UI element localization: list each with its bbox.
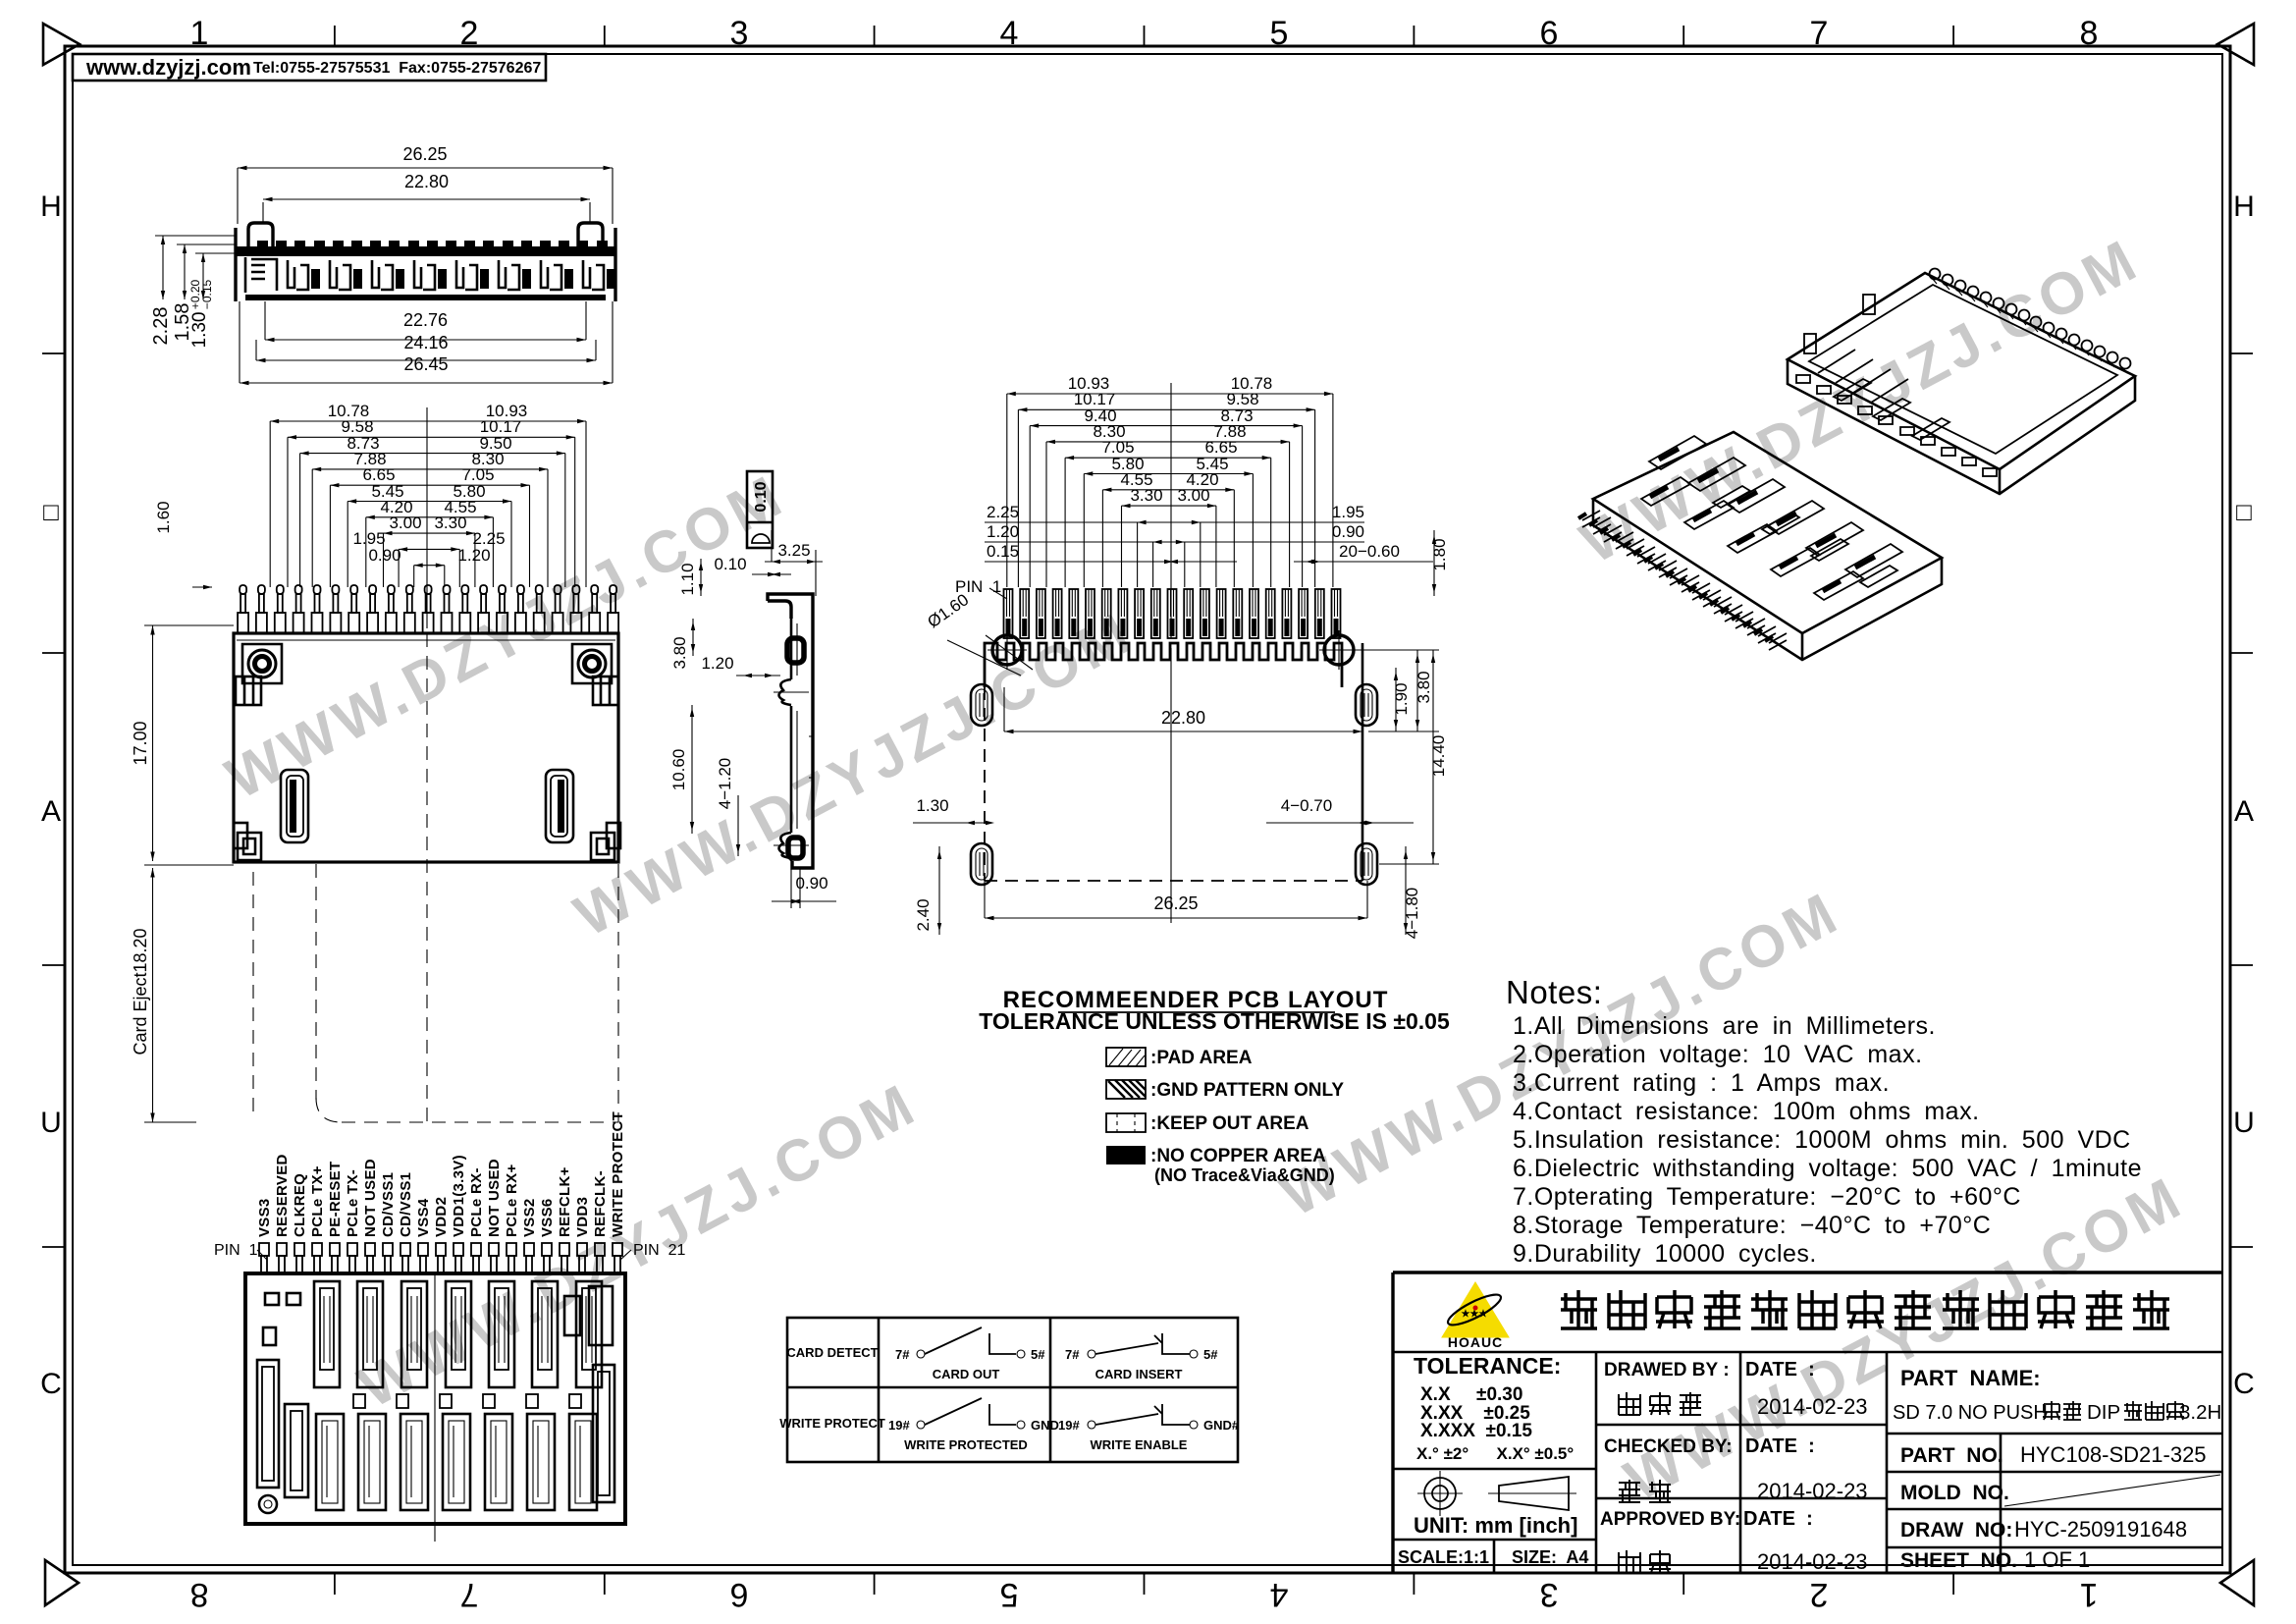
svg-text:8.Storage Temperature: −40°C t: 8.Storage Temperature: −40°C to +70°C [1513,1212,1991,1239]
svg-text:19#: 19# [888,1418,910,1433]
svg-text:VSS3: VSS3 [256,1198,273,1237]
svg-text:1.30: 1.30 [189,312,210,349]
svg-text:14.40: 14.40 [1429,735,1448,778]
svg-text:1.60: 1.60 [154,501,173,533]
svg-text:HYC108-SD21-325: HYC108-SD21-325 [2020,1442,2207,1467]
svg-text:1: 1 [190,15,209,52]
svg-text:C: C [2233,1368,2255,1400]
svg-text:WRITE PROTECTED: WRITE PROTECTED [904,1437,1028,1452]
svg-text:0.10: 0.10 [714,555,746,573]
svg-text:SIZE: A4: SIZE: A4 [1512,1547,1588,1567]
svg-text:CARD INSERT: CARD INSERT [1095,1367,1183,1381]
svg-text:A: A [41,795,61,828]
svg-text:6.Dielectric withstanding volt: 6.Dielectric withstanding voltage: 500 V… [1513,1155,2142,1182]
svg-text:2: 2 [460,15,479,52]
svg-text:PART NAME:: PART NAME: [1900,1366,2041,1390]
svg-text:1.20: 1.20 [457,546,490,565]
svg-text:DATE :: DATE : [1745,1435,1815,1457]
svg-text:3.30: 3.30 [1130,486,1162,505]
svg-text:8: 8 [2080,15,2099,52]
svg-text:UNIT: mm [inch]: UNIT: mm [inch] [1414,1513,1577,1538]
svg-text:Tel:0755-27575531 Fax:0755-27: Tel:0755-27575531 Fax:0755-27576267 [253,60,541,77]
svg-text:PART NO.: PART NO. [1900,1444,2003,1467]
svg-text:24.16: 24.16 [403,333,448,352]
svg-text:DIP: DIP [2087,1401,2120,1424]
svg-text:9.Durability 10000 cycles.: 9.Durability 10000 cycles. [1513,1240,1817,1268]
svg-text:22.80: 22.80 [1161,708,1205,728]
svg-text:U: U [2233,1107,2255,1139]
svg-text:3: 3 [1540,1576,1559,1613]
svg-text:Card Eject18.20: Card Eject18.20 [131,928,150,1055]
svg-text:□: □ [43,497,59,526]
svg-text:CD/VSS1: CD/VSS1 [398,1172,414,1237]
svg-text:4: 4 [1000,15,1019,52]
svg-text:2.Operation voltage: 10 VAC ma: 2.Operation voltage: 10 VAC max. [1513,1041,1923,1068]
svg-text:6: 6 [730,1576,749,1613]
svg-text:□: □ [2236,497,2252,526]
svg-text:NOT USED: NOT USED [486,1159,503,1237]
svg-text:SD 7.0 NO PUSH: SD 7.0 NO PUSH [1893,1402,2048,1424]
svg-text:C: C [40,1368,62,1400]
svg-text:TOLERANCE UNLESS OTHERWISE IS: TOLERANCE UNLESS OTHERWISE IS ±0.05 [979,1008,1450,1034]
svg-text:19#: 19# [1058,1418,1080,1433]
svg-text:WRITE PROTECT: WRITE PROTECT [779,1416,885,1431]
svg-text:2.28: 2.28 [150,307,172,346]
svg-text:X.XXX ±0.15: X.XXX ±0.15 [1420,1421,1532,1441]
svg-text:(NO Trace&Via&GND): (NO Trace&Via&GND) [1154,1165,1335,1185]
svg-text:HOAUC: HOAUC [1448,1334,1503,1350]
svg-text:RESERVED: RESERVED [274,1154,291,1237]
svg-text:26.45: 26.45 [403,354,448,374]
svg-text:22.80: 22.80 [404,172,449,191]
svg-text::GND PATTERN ONLY: :GND PATTERN ONLY [1150,1080,1344,1101]
svg-text:1.20: 1.20 [987,522,1019,541]
svg-text:APPROVED BY:: APPROVED BY: [1600,1509,1740,1530]
svg-text:3.25: 3.25 [777,541,810,560]
svg-text:3.2H: 3.2H [2179,1401,2221,1424]
svg-text:0.90: 0.90 [368,546,400,565]
svg-text:1.All Dimensions are in Millim: 1.All Dimensions are in Millimeters. [1513,1012,1936,1040]
svg-text:CD/VSS1: CD/VSS1 [380,1172,397,1237]
svg-text:U: U [40,1107,62,1139]
svg-text:MOLD NO.: MOLD NO. [1900,1482,2009,1504]
svg-text:22.76: 22.76 [403,310,448,330]
svg-text:5.Insulation resistance: 1000M: 5.Insulation resistance: 1000M ohms min.… [1513,1126,2131,1154]
svg-text:2.40: 2.40 [914,898,933,931]
svg-text:X.X ±0.30: X.X ±0.30 [1420,1384,1522,1405]
svg-text:H: H [2233,190,2255,223]
svg-text:7: 7 [1810,15,1829,52]
svg-text:DRAWED BY :: DRAWED BY : [1604,1360,1730,1380]
svg-text:VDD1(3.3V): VDD1(3.3V) [451,1155,467,1237]
svg-text:3.00: 3.00 [389,514,421,532]
svg-text:0.90: 0.90 [1332,522,1364,541]
svg-text:A: A [2234,795,2254,828]
svg-text:1: 1 [2080,1576,2099,1613]
svg-text:1.20: 1.20 [701,654,733,673]
svg-text:26.25: 26.25 [1153,893,1198,913]
svg-text:26.25: 26.25 [402,144,447,164]
svg-text:Notes:: Notes: [1506,974,1602,1010]
svg-text:2: 2 [1810,1576,1829,1613]
svg-text:TOLERANCE:: TOLERANCE: [1414,1353,1561,1379]
svg-text:VSS2: VSS2 [521,1198,538,1237]
svg-text:SHEET NO.: SHEET NO. [1900,1549,2017,1572]
svg-text:GND#: GND# [1203,1418,1240,1433]
svg-text:REFCLK-: REFCLK- [592,1170,609,1237]
svg-text:2014-02-23: 2014-02-23 [1757,1394,1868,1419]
svg-text:0.15: 0.15 [987,542,1019,561]
svg-text:PIN 1: PIN 1 [214,1242,258,1259]
svg-text:HYC-2509191648: HYC-2509191648 [2014,1517,2187,1542]
svg-text:H: H [40,190,62,223]
svg-text:8: 8 [190,1576,209,1613]
svg-text:3.80: 3.80 [670,636,689,669]
svg-text:DATE :: DATE : [1745,1359,1815,1380]
svg-text:2014-02-23: 2014-02-23 [1757,1549,1868,1574]
svg-text::NO COPPER AREA: :NO COPPER AREA [1150,1146,1326,1166]
svg-text:SCALE:1:1: SCALE:1:1 [1398,1547,1489,1567]
svg-text:CHECKED BY:: CHECKED BY: [1604,1436,1733,1457]
svg-text::PAD AREA: :PAD AREA [1150,1048,1253,1068]
svg-text:WRITE PROTECT: WRITE PROTECT [610,1111,626,1237]
svg-text:5: 5 [1270,15,1289,52]
svg-text:7: 7 [460,1576,479,1613]
svg-text:3: 3 [730,15,749,52]
svg-text:2014-02-23: 2014-02-23 [1757,1479,1868,1503]
svg-text:VSS4: VSS4 [415,1198,432,1237]
svg-text:DATE :: DATE : [1743,1508,1813,1530]
svg-text:NOT USED: NOT USED [362,1159,379,1237]
svg-text:10.60: 10.60 [669,749,688,791]
svg-text::KEEP OUT AREA: :KEEP OUT AREA [1150,1113,1309,1134]
svg-text:7#: 7# [895,1347,910,1362]
svg-text:VDD3: VDD3 [574,1197,591,1237]
svg-text:PCLe RX-: PCLe RX- [468,1167,485,1237]
svg-text:20−0.60: 20−0.60 [1339,542,1400,561]
svg-text:0.10: 0.10 [753,481,770,512]
svg-text:7#: 7# [1065,1347,1080,1362]
svg-text:3.30: 3.30 [434,514,466,532]
svg-text:PIN 21: PIN 21 [633,1242,685,1259]
svg-text:VDD2: VDD2 [433,1197,450,1237]
svg-text:1 OF 1: 1 OF 1 [2024,1547,2090,1572]
svg-text:WRITE ENABLE: WRITE ENABLE [1091,1437,1188,1452]
svg-text:4: 4 [1270,1576,1289,1613]
svg-text:7.Opterating Temperature: −20°: 7.Opterating Temperature: −20°C to +60°C [1513,1183,2021,1211]
svg-text:www.dzyjzj.com: www.dzyjzj.com [85,55,251,80]
svg-text:3.00: 3.00 [1177,486,1209,505]
svg-text:VSS6: VSS6 [539,1198,556,1237]
svg-text:PCLe TX-: PCLe TX- [345,1169,361,1237]
svg-text:1.10: 1.10 [678,563,697,595]
svg-text:4−1.20: 4−1.20 [716,758,734,809]
svg-text:1.30: 1.30 [916,796,948,815]
svg-text:5: 5 [1000,1576,1019,1613]
svg-text:6: 6 [1540,15,1559,52]
svg-text:CLKREQ: CLKREQ [292,1173,308,1237]
svg-text:−0.15: −0.15 [200,279,214,309]
svg-text:X.° ±2° X.X° ±0.5°: X.° ±2° X.X° ±0.5° [1416,1444,1574,1463]
svg-text:PCLe RX+: PCLe RX+ [504,1164,520,1237]
svg-text:2.25: 2.25 [987,503,1019,521]
svg-text:5#: 5# [1203,1347,1218,1362]
svg-text:PCLe TX+: PCLe TX+ [309,1165,326,1237]
svg-text:GND: GND [1031,1418,1059,1433]
svg-text:4−0.70: 4−0.70 [1281,796,1332,815]
svg-text:1.90: 1.90 [1392,682,1411,715]
svg-text:CARD DETECT: CARD DETECT [786,1345,878,1360]
svg-text:★★★: ★★★ [1462,1309,1488,1320]
svg-text:5#: 5# [1031,1347,1045,1362]
svg-text:17.00: 17.00 [131,721,150,765]
svg-text:CARD OUT: CARD OUT [933,1367,1000,1381]
svg-text:PE-RESET: PE-RESET [327,1162,344,1237]
svg-text:3.Current rating : 1 Amps max.: 3.Current rating : 1 Amps max. [1513,1069,1890,1097]
svg-text:4.Contact resistance: 100m ohm: 4.Contact resistance: 100m ohms max. [1513,1098,1980,1125]
svg-text:1.95: 1.95 [1332,503,1364,521]
svg-text:DRAW NO:: DRAW NO: [1900,1519,2012,1542]
svg-text:REFCLK+: REFCLK+ [557,1166,573,1237]
